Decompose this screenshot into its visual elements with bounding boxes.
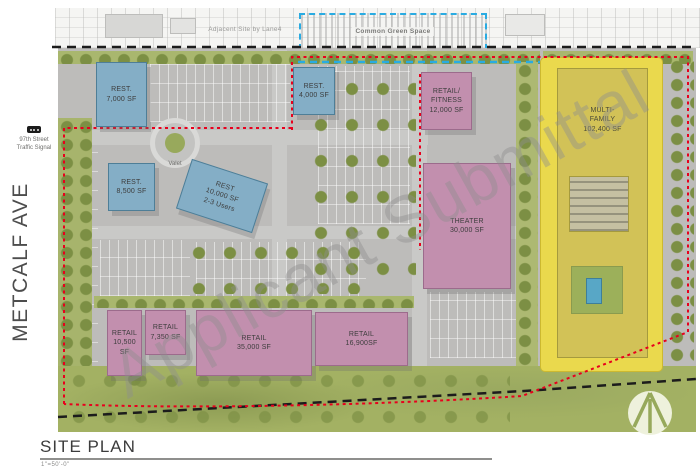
theater-east-hedge xyxy=(516,62,538,368)
parking-tree-islands xyxy=(190,244,370,294)
adjacent-building-outline xyxy=(505,14,545,36)
pool xyxy=(586,278,602,304)
drawing-scale: 1"=50'-0" xyxy=(41,462,70,468)
parking-stalls xyxy=(430,292,530,358)
building-retail-fitness: RETAIL/ FITNESS 12,000 SF xyxy=(421,72,472,130)
building-retail-7350: RETAIL 7,350 SF xyxy=(145,310,186,355)
parking-stalls xyxy=(150,60,290,122)
east-edge-trees xyxy=(668,58,694,370)
building-rest-8500: REST. 8,500 SF xyxy=(108,163,155,211)
building-label-multi-family: MULTI- FAMILY 102,400 SF xyxy=(557,106,648,134)
building-retail-35000: RETAIL 35,000 SF xyxy=(196,310,312,376)
building-rest-4000: REST. 4,000 SF xyxy=(293,67,335,115)
traffic-signal-icon xyxy=(27,126,41,133)
building-retail-16900: RETAIL 16,900SF xyxy=(315,312,408,366)
common-green-space-box: Common Green Space xyxy=(299,13,487,50)
roundabout-island xyxy=(165,133,185,153)
building-rest-7000: REST. 7,000 SF xyxy=(96,62,147,127)
parking-stalls xyxy=(100,240,190,296)
site-plan-page: Adjacent Site by Lane4 Common Green Spac… xyxy=(0,0,700,476)
south-lawn-trees xyxy=(70,372,510,428)
building-retail-10500: RETAIL 10,500 SF xyxy=(107,310,142,376)
page-title: SITE PLAN xyxy=(40,437,136,457)
title-rule xyxy=(40,458,492,460)
common-green-space-label: Common Green Space xyxy=(352,27,433,36)
adjacent-building-outline xyxy=(105,14,163,38)
building-theater: THEATER 30,000 SF xyxy=(423,163,511,289)
adjacent-site-label: Adjacent Site by Lane4 xyxy=(200,26,290,33)
metcalf-ave-label: METCALF AVE xyxy=(9,177,33,347)
traffic-signal-label: 97th Street Traffic Signal xyxy=(8,137,60,153)
adjacent-building-outline xyxy=(170,18,196,34)
north-arrow-icon xyxy=(626,389,674,437)
retail-row-hedge xyxy=(94,296,414,308)
multifamily-courtyard-deck xyxy=(569,176,629,232)
